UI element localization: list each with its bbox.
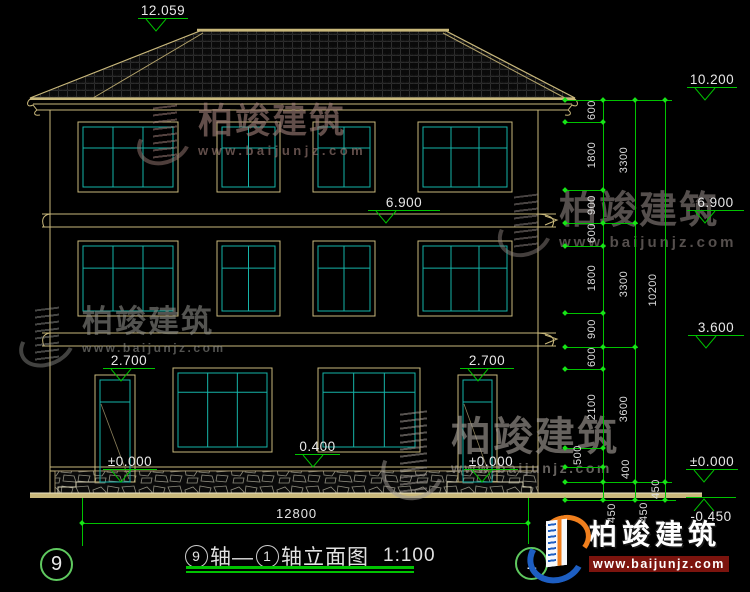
dimension-label: 3300 <box>618 140 630 180</box>
dimension-tick <box>632 344 638 350</box>
company-name: 柏竣建筑 <box>589 513 729 553</box>
extension-line <box>563 313 605 314</box>
dimension-tick <box>79 520 85 526</box>
overall-width-dimension: 12800 <box>276 506 317 521</box>
dimension-tick <box>600 366 606 372</box>
elevation-marker: 0.400 <box>295 441 340 471</box>
dimension-tick <box>600 497 606 503</box>
dimension-tick <box>562 220 568 226</box>
dimension-tick <box>662 97 668 103</box>
axis-bubble-9: 9 <box>40 548 73 581</box>
elevation-marker: 2.700 <box>103 355 155 385</box>
company-logo: 柏竣建筑 www.baijunjz.com <box>527 513 729 577</box>
elevation-marker: 6.900 <box>368 197 440 227</box>
elevation-triangle-icon <box>109 470 133 483</box>
dimension-tick <box>600 187 606 193</box>
elevation-value: 3.600 <box>688 320 744 335</box>
extension-line <box>563 448 605 449</box>
elevation-value: ±0.000 <box>686 454 738 469</box>
elevation-value: 10.200 <box>687 72 737 87</box>
dimension-tick <box>562 497 568 503</box>
dimension-label: 10200 <box>647 270 659 310</box>
dimension-tick <box>600 97 606 103</box>
dimension-tick <box>600 220 606 226</box>
extension-line <box>563 369 605 370</box>
dimension-tick <box>600 243 606 249</box>
dimension-tick <box>600 479 606 485</box>
dimension-tick <box>562 366 568 372</box>
dimension-tick <box>632 479 638 485</box>
dimension-tick <box>562 310 568 316</box>
elevation-triangle-icon <box>694 336 718 349</box>
elevation-triangle-icon <box>693 88 717 101</box>
extension-line <box>563 100 672 101</box>
elevation-marker: 6.900 <box>687 197 744 227</box>
extension-line <box>563 190 605 191</box>
elevation-marker: 2.700 <box>460 355 514 385</box>
company-site: www.baijunjz.com <box>589 556 729 572</box>
elevation-value: 6.900 <box>687 195 744 210</box>
dimension-tick <box>662 479 668 485</box>
dimension-line <box>665 100 666 500</box>
dimension-tick <box>562 119 568 125</box>
dimension-tick <box>632 97 638 103</box>
elevation-value: 12.059 <box>138 3 188 18</box>
axis-circle-start: 9 <box>185 545 208 568</box>
dimension-tick <box>600 464 606 470</box>
elevation-value: ±0.000 <box>464 454 518 469</box>
dimension-label: 600 <box>586 213 598 253</box>
extension-line <box>563 246 605 247</box>
dimension-label: 1800 <box>586 258 598 298</box>
extension-line <box>563 122 605 123</box>
elevation-triangle-icon <box>301 455 325 468</box>
dimension-label: 500 <box>572 435 584 475</box>
elevation-triangle-icon <box>692 470 716 483</box>
dimension-overlay: 6001800900600180090060021005004004503300… <box>0 0 750 592</box>
axis-circle-end: 1 <box>256 545 279 568</box>
elevation-triangle-icon <box>693 211 717 224</box>
dimension-tick <box>562 464 568 470</box>
dimension-label: 600 <box>586 90 598 130</box>
dimension-tick <box>562 479 568 485</box>
dimension-tick <box>632 497 638 503</box>
dimension-tick <box>600 119 606 125</box>
title-scale: 1:100 <box>383 545 436 567</box>
dimension-label: 3300 <box>618 264 630 304</box>
elevation-marker: ±0.000 <box>103 456 157 486</box>
extension-line <box>563 467 605 468</box>
dimension-tick <box>562 445 568 451</box>
dimension-tick <box>632 220 638 226</box>
dimension-label: 1800 <box>586 135 598 175</box>
elevation-value: 0.400 <box>295 439 340 454</box>
dimension-label: 3600 <box>618 389 630 429</box>
company-logo-icon <box>527 513 585 577</box>
dimension-tick <box>562 187 568 193</box>
dimension-label: 600 <box>586 337 598 377</box>
dimension-label: 2100 <box>586 387 598 427</box>
cad-elevation-canvas: 柏竣建筑 www.baijunjz.com 柏竣建筑 www.baijunjz.… <box>0 0 750 592</box>
elevation-marker: ±0.000 <box>686 456 738 486</box>
title-underline-2 <box>186 571 414 573</box>
elevation-triangle-icon <box>470 470 494 483</box>
elevation-value: ±0.000 <box>103 454 157 469</box>
elevation-value: 2.700 <box>103 353 155 368</box>
elevation-value: 2.700 <box>460 353 514 368</box>
elevation-marker: 12.059 <box>138 5 188 35</box>
title-underline <box>186 566 414 569</box>
dimension-tick <box>562 243 568 249</box>
dimension-tick <box>562 97 568 103</box>
dimension-label: 400 <box>620 449 632 489</box>
elevation-marker: 10.200 <box>687 74 737 104</box>
dimension-line <box>635 100 636 500</box>
dimension-label: 450 <box>650 469 662 509</box>
elevation-triangle-icon <box>109 369 133 382</box>
extension-line <box>82 523 528 524</box>
dimension-tick <box>600 445 606 451</box>
elevation-triangle-icon <box>374 211 398 224</box>
elevation-triangle-icon <box>692 498 716 511</box>
dimension-tick <box>600 310 606 316</box>
dimension-tick <box>662 497 668 503</box>
dimension-tick <box>600 344 606 350</box>
dimension-line <box>603 100 604 500</box>
elevation-value: 6.900 <box>368 195 440 210</box>
elevation-marker: 3.600 <box>688 322 744 352</box>
dimension-tick <box>562 344 568 350</box>
elevation-marker: ±0.000 <box>464 456 518 486</box>
elevation-triangle-icon <box>466 369 490 382</box>
elevation-triangle-icon <box>144 19 168 32</box>
